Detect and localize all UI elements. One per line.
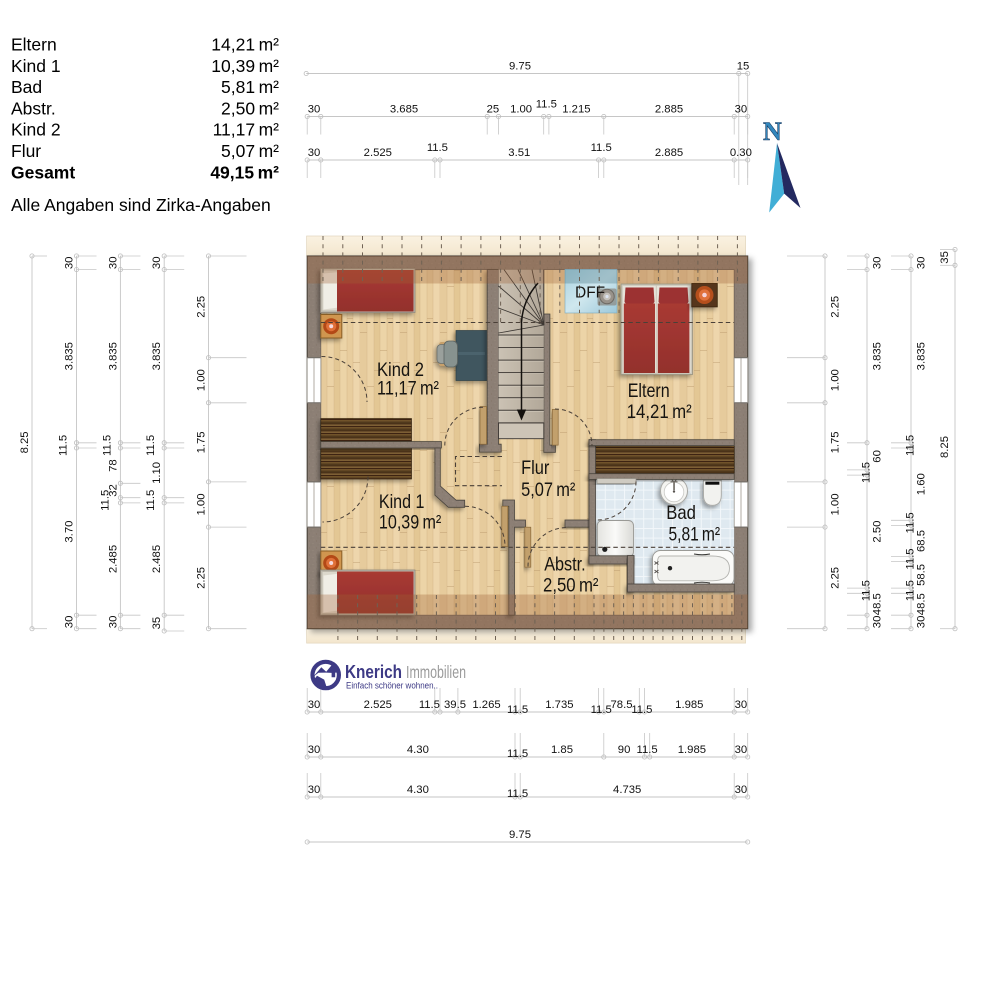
svg-text:1.735: 1.735 (545, 699, 573, 711)
svg-text:11.5: 11.5 (145, 435, 157, 456)
svg-text:30: 30 (151, 257, 163, 270)
svg-text:2.525: 2.525 (364, 147, 392, 159)
svg-text:2.885: 2.885 (655, 147, 683, 159)
svg-text:2,50 m²: 2,50 m² (221, 98, 279, 118)
svg-text:30: 30 (64, 616, 76, 629)
svg-text:4.735: 4.735 (613, 784, 641, 796)
svg-text:Flur: Flur (521, 457, 550, 479)
svg-text:1.85: 1.85 (551, 744, 573, 756)
svg-text:39.5: 39.5 (444, 699, 466, 711)
svg-text:5,07 m²: 5,07 m² (521, 479, 576, 501)
svg-text:30: 30 (916, 616, 928, 629)
svg-text:11.5: 11.5 (905, 435, 917, 456)
svg-text:1.75: 1.75 (196, 431, 208, 453)
svg-text:1.985: 1.985 (678, 744, 706, 756)
svg-text:1.00: 1.00 (510, 104, 532, 116)
svg-text:Abstr.: Abstr. (544, 554, 586, 576)
svg-text:68.5: 68.5 (916, 530, 928, 552)
svg-text:15: 15 (737, 61, 750, 73)
svg-text:2.525: 2.525 (364, 699, 392, 711)
svg-text:DFF: DFF (575, 285, 605, 302)
svg-text:30: 30 (308, 744, 321, 756)
svg-text:5,81 m²: 5,81 m² (669, 524, 721, 546)
svg-text:2,50 m²: 2,50 m² (543, 575, 599, 597)
svg-text:11.5: 11.5 (58, 435, 70, 456)
svg-text:3.835: 3.835 (916, 342, 928, 370)
svg-text:11,17 m²: 11,17 m² (213, 120, 280, 140)
svg-text:Bad: Bad (666, 502, 696, 524)
svg-text:1.10: 1.10 (151, 462, 163, 484)
svg-text:Kind 1: Kind 1 (379, 491, 425, 513)
svg-text:10,39 m²: 10,39 m² (211, 56, 279, 76)
svg-text:2.25: 2.25 (196, 296, 208, 318)
svg-text:11.5: 11.5 (591, 704, 612, 716)
svg-text:48.5: 48.5 (872, 593, 884, 615)
svg-text:1.00: 1.00 (196, 494, 208, 516)
svg-text:11.5: 11.5 (631, 704, 652, 716)
svg-text:11.5: 11.5 (536, 99, 557, 111)
svg-text:2.25: 2.25 (830, 567, 842, 589)
svg-text:30: 30 (107, 616, 119, 629)
svg-text:30: 30 (872, 616, 884, 629)
svg-text:0.30: 0.30 (730, 147, 752, 159)
svg-text:1.985: 1.985 (675, 699, 703, 711)
svg-text:8.25: 8.25 (19, 431, 31, 453)
svg-text:2.25: 2.25 (830, 296, 842, 318)
svg-text:14,21 m²: 14,21 m² (627, 401, 692, 423)
svg-text:1.00: 1.00 (196, 369, 208, 391)
svg-text:11.5: 11.5 (861, 462, 873, 483)
svg-text:Flur: Flur (11, 141, 41, 161)
svg-text:1.265: 1.265 (472, 699, 500, 711)
svg-text:30: 30 (735, 744, 748, 756)
svg-text:1.00: 1.00 (830, 369, 842, 391)
svg-text:3.835: 3.835 (872, 342, 884, 370)
svg-text:Abstr.: Abstr. (11, 98, 56, 118)
svg-text:11.5: 11.5 (507, 788, 528, 800)
svg-text:11.5: 11.5 (637, 744, 658, 756)
svg-text:11.5: 11.5 (419, 699, 440, 711)
svg-text:1.00: 1.00 (830, 494, 842, 516)
svg-text:35: 35 (151, 617, 163, 630)
svg-text:2.25: 2.25 (196, 567, 208, 589)
svg-text:1.215: 1.215 (562, 104, 590, 116)
svg-text:30: 30 (64, 257, 76, 270)
svg-text:1.75: 1.75 (830, 431, 842, 453)
svg-text:35: 35 (939, 251, 951, 264)
svg-text:3.51: 3.51 (508, 147, 530, 159)
svg-text:3.685: 3.685 (390, 104, 418, 116)
svg-text:3.835: 3.835 (64, 342, 76, 370)
svg-text:Knerich: Knerich (345, 662, 402, 682)
svg-text:Gesamt: Gesamt (11, 162, 75, 182)
svg-text:Einfach schöner wohnen..: Einfach schöner wohnen.. (346, 681, 438, 691)
svg-text:30: 30 (107, 257, 119, 270)
svg-text:Bad: Bad (11, 77, 42, 97)
svg-text:8.25: 8.25 (939, 436, 951, 458)
svg-text:14,21 m²: 14,21 m² (211, 35, 279, 55)
svg-text:11.5: 11.5 (591, 142, 612, 154)
svg-text:3.835: 3.835 (151, 342, 163, 370)
svg-text:1.60: 1.60 (916, 473, 928, 495)
svg-text:9.75: 9.75 (509, 829, 531, 841)
svg-text:30: 30 (872, 257, 884, 270)
svg-text:11.5: 11.5 (99, 490, 111, 511)
svg-text:49,15 m²: 49,15 m² (210, 162, 279, 182)
svg-text:3.70: 3.70 (64, 521, 76, 543)
svg-text:78.5: 78.5 (611, 699, 633, 711)
svg-text:9.75: 9.75 (509, 61, 531, 73)
svg-text:N: N (763, 117, 782, 146)
svg-text:11.5: 11.5 (101, 435, 113, 456)
svg-text:Immobilien: Immobilien (406, 662, 466, 682)
svg-text:30: 30 (308, 104, 321, 116)
svg-text:30: 30 (735, 699, 748, 711)
svg-text:Eltern: Eltern (628, 380, 670, 402)
svg-text:Kind 2: Kind 2 (11, 120, 61, 140)
svg-text:2.485: 2.485 (107, 545, 119, 573)
svg-text:30: 30 (308, 784, 321, 796)
svg-text:4.30: 4.30 (407, 784, 429, 796)
svg-text:30: 30 (308, 147, 321, 159)
svg-text:78: 78 (107, 459, 119, 472)
svg-text:11.5: 11.5 (427, 142, 448, 154)
svg-text:30: 30 (308, 699, 321, 711)
svg-text:11,17 m²: 11,17 m² (377, 378, 439, 400)
svg-text:11.5: 11.5 (507, 704, 528, 716)
svg-text:58.5: 58.5 (916, 564, 928, 586)
svg-text:11.5: 11.5 (507, 748, 528, 760)
svg-text:60: 60 (872, 450, 884, 463)
svg-text:2.485: 2.485 (151, 545, 163, 573)
svg-text:5,81 m²: 5,81 m² (221, 77, 279, 97)
svg-text:2.885: 2.885 (655, 104, 683, 116)
svg-text:5,07 m²: 5,07 m² (221, 141, 279, 161)
svg-text:2.50: 2.50 (872, 521, 884, 543)
svg-text:30: 30 (735, 104, 748, 116)
svg-text:90: 90 (618, 744, 631, 756)
svg-text:48.5: 48.5 (916, 593, 928, 615)
svg-text:4.30: 4.30 (407, 744, 429, 756)
svg-text:Alle Angaben sind Zirka-Angabe: Alle Angaben sind Zirka-Angaben (11, 195, 271, 215)
svg-text:3.835: 3.835 (107, 342, 119, 370)
svg-text:11.5: 11.5 (145, 490, 157, 511)
svg-text:30: 30 (735, 784, 748, 796)
svg-text:Eltern: Eltern (11, 35, 57, 55)
svg-text:30: 30 (916, 257, 928, 270)
svg-text:10,39 m²: 10,39 m² (379, 512, 442, 534)
svg-text:Kind 1: Kind 1 (11, 56, 61, 76)
svg-text:25: 25 (487, 104, 500, 116)
